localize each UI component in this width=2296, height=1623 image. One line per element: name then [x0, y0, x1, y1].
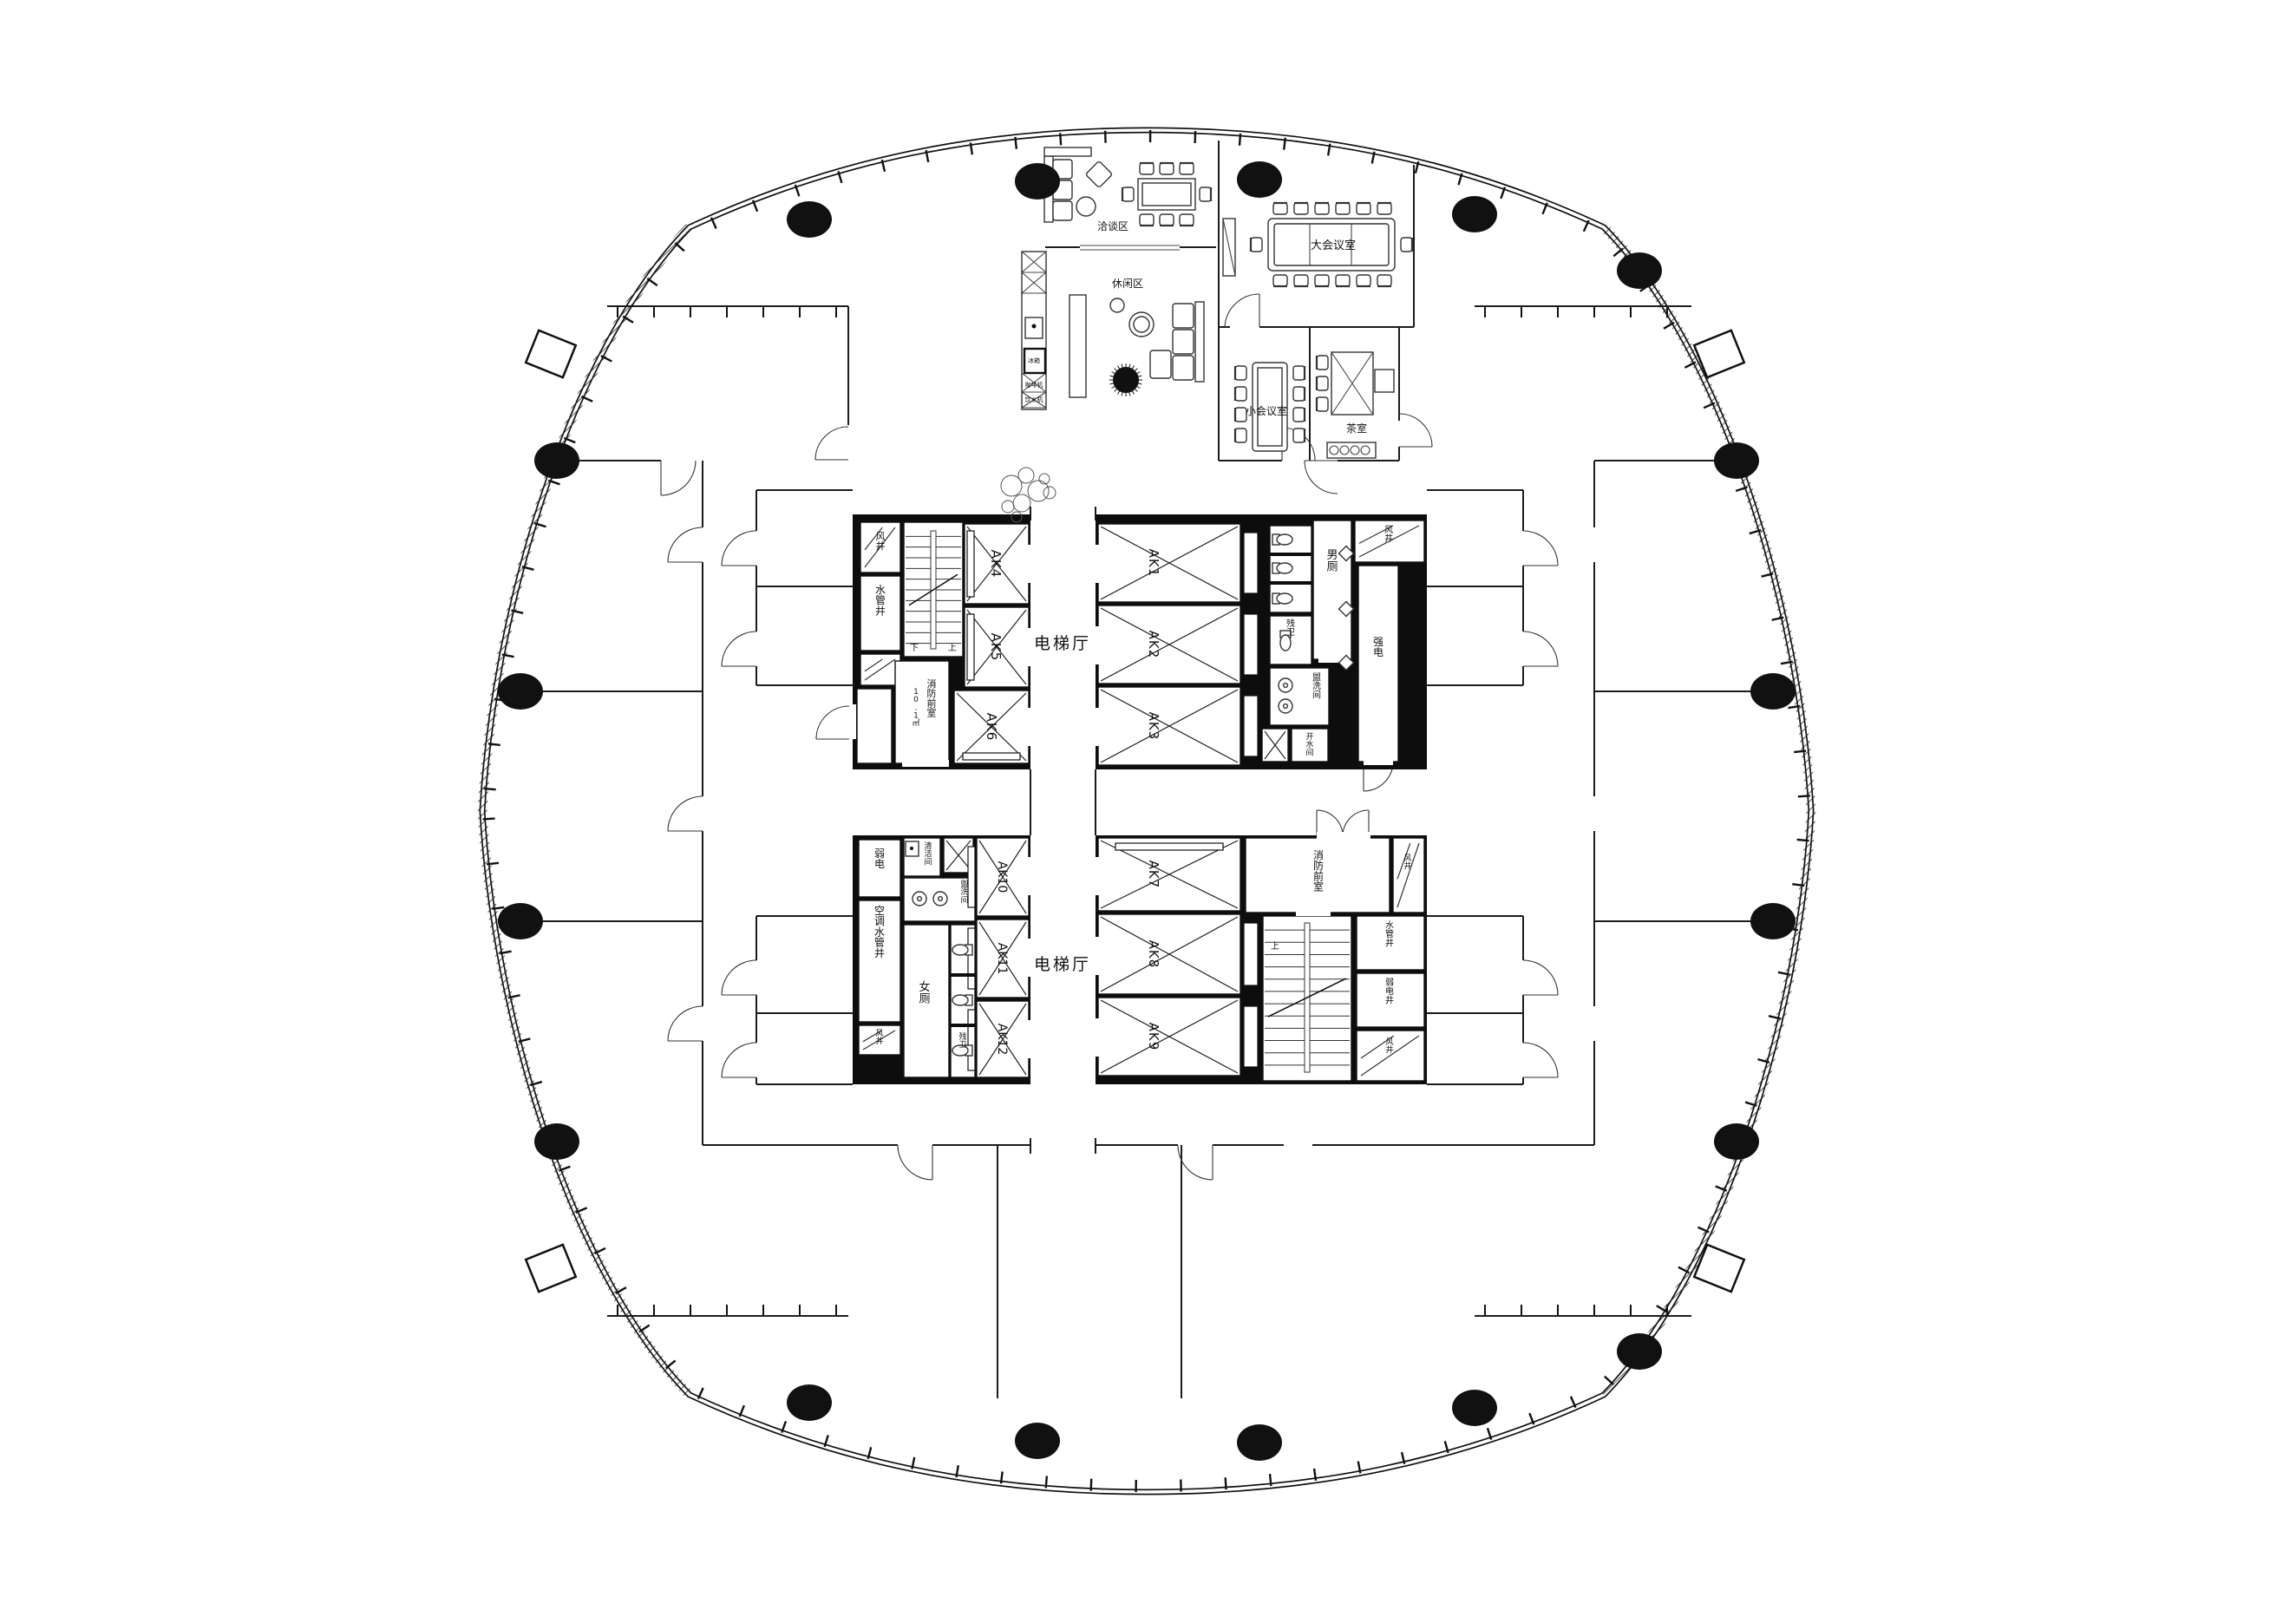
label-ak10: AK10 [995, 861, 1009, 893]
label-fire-lobby-l: 消防前室 [1313, 849, 1324, 893]
label-ak2: AK2 [1146, 631, 1161, 659]
label-accessible-wc-l: 残卫 [958, 1031, 966, 1050]
floor-plan-page: 风井 水管井 消防前室 10.1㎡ AK4 AK5 AK6 电梯厅 AK1 AK… [0, 0, 2296, 1623]
label-ak12: AK12 [995, 1024, 1009, 1056]
label-leisure-area: 休闲区 [1112, 278, 1143, 290]
label-washroom-u: 盥洗间 [1312, 672, 1321, 700]
facade-box-sw [526, 1245, 576, 1292]
label-wind-shaft-ll: 风井 [875, 1029, 883, 1046]
label-water-dispenser: 饮水机 [1025, 396, 1043, 403]
label-accessible-wc-u: 残卫 [1286, 618, 1295, 638]
label-elevator-hall-upper: 电梯厅 [1034, 634, 1091, 653]
label-water-shaft-ul: 水管井 [875, 584, 886, 617]
label-fridge: 冰箱 [1028, 357, 1040, 364]
label-stair-down-u: 下 [910, 644, 919, 653]
label-ak1: AK1 [1146, 549, 1161, 578]
label-large-meeting-room: 大会议室 [1311, 239, 1356, 252]
label-weak-electric: 弱电 [874, 847, 885, 870]
label-stair-up-l: 上 [1271, 941, 1279, 952]
label-tea-room: 茶室 [1346, 422, 1367, 435]
facade-box-nw [526, 330, 576, 377]
label-weak-electric-shaft: 弱电井 [1385, 978, 1394, 1005]
label-mens-toilet: 男厕 [1326, 549, 1338, 573]
label-ak4: AK4 [988, 550, 1004, 579]
label-elevator-hall-lower: 电梯厅 [1034, 955, 1091, 974]
label-coffee-machine: 咖啡机 [1025, 381, 1043, 389]
label-water-shaft-lr: 水管井 [1385, 920, 1394, 948]
label-fire-lobby-u: 消防前室 [927, 677, 937, 719]
label-small-meeting-room: 小会议室 [1246, 404, 1287, 417]
label-strong-electric: 强电 [1373, 636, 1383, 658]
label-ak3: AK3 [1146, 712, 1161, 741]
label-wind-shaft-lr-top: 风井 [1403, 854, 1411, 871]
label-cleaning-room: 清洁间 [924, 841, 932, 867]
label-ak9: AK9 [1146, 1023, 1161, 1051]
label-ak8: AK8 [1146, 940, 1161, 969]
label-wind-shaft-lr-bot: 风井 [1385, 1037, 1393, 1055]
label-wind-shaft-ul: 风井 [876, 531, 886, 552]
label-ak5: AK5 [988, 633, 1004, 662]
label-ak7: AK7 [1146, 861, 1161, 889]
floor-plan-canvas: 风井 水管井 消防前室 10.1㎡ AK4 AK5 AK6 电梯厅 AK1 AK… [0, 0, 2296, 1623]
label-ak11: AK11 [995, 943, 1009, 975]
label-negotiation-area: 洽谈区 [1097, 220, 1128, 232]
label-ac-water-shaft: 空调水管井 [874, 905, 885, 959]
label-wind-shaft-ur: 风井 [1384, 525, 1393, 544]
label-stair-up-u: 上 [948, 643, 957, 653]
label-hot-water-room: 开水间 [1305, 732, 1313, 757]
label-womens-toilet: 女厕 [919, 980, 930, 1005]
label-washroom-l: 盥洗间 [960, 879, 968, 905]
label-ak6: AK6 [984, 713, 999, 742]
